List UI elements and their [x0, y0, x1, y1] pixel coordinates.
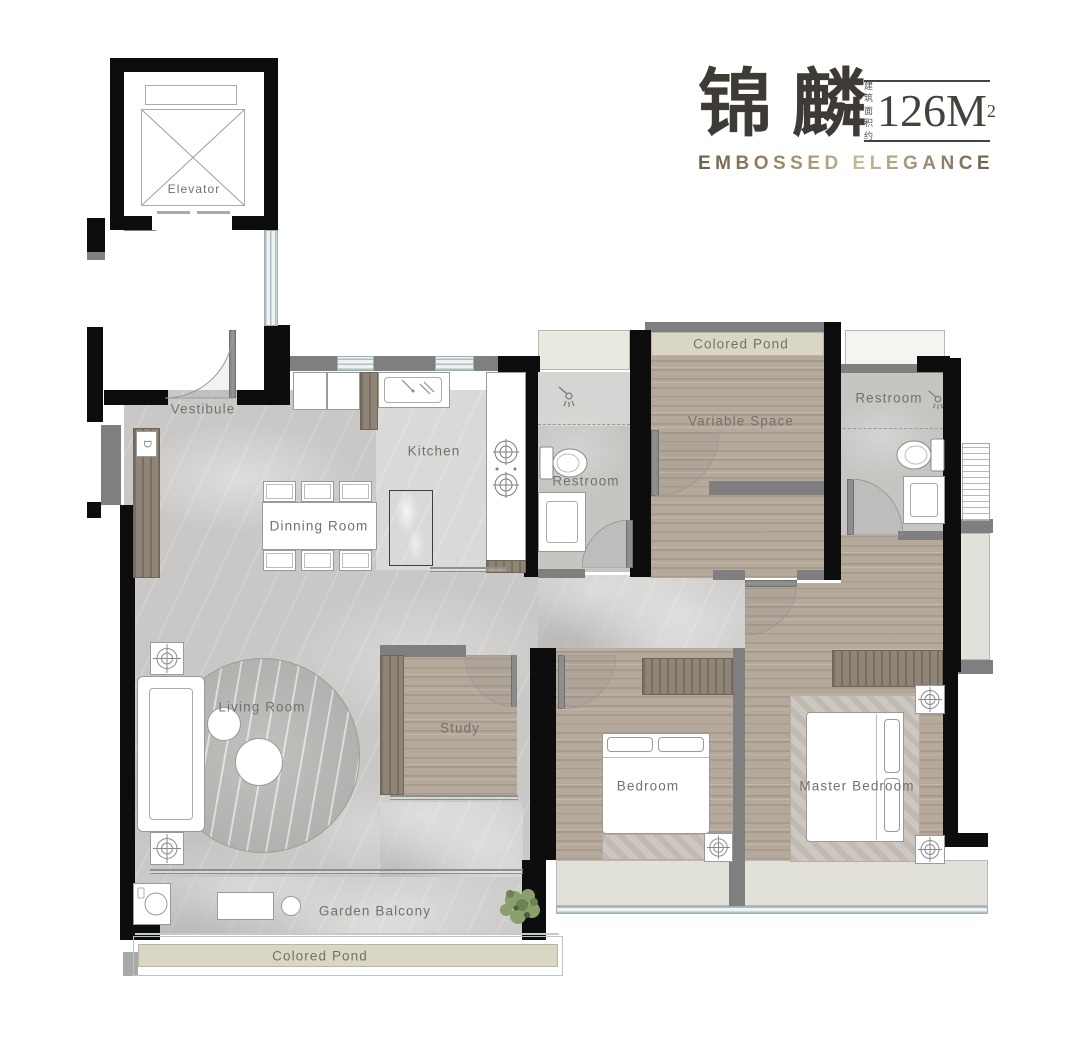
wall-segment: [824, 322, 841, 580]
balcony-bench: [217, 892, 274, 920]
floor-hallway: [538, 575, 745, 648]
kitchen-cabinet: [293, 372, 327, 410]
crosshair-icon: [705, 834, 732, 861]
crosshair-icon: [916, 836, 944, 863]
bay-restroom-center-north: [538, 330, 630, 370]
restroom-right-door-arc: [851, 479, 903, 535]
side-table: [150, 642, 184, 675]
sofa-seat: [149, 688, 193, 820]
bedroom-door-arc: [562, 655, 616, 709]
master-door-arc: [745, 583, 797, 635]
washer-drum-icon: [134, 884, 170, 924]
restroom-center-door-arc: [582, 520, 630, 568]
dining-chair: [301, 481, 334, 502]
kitchen-island: [389, 490, 433, 566]
elevator-counterweight: [145, 85, 237, 105]
dining-chair: [263, 481, 296, 502]
wall-segment: [713, 570, 745, 580]
area-superscript: 2: [987, 102, 996, 120]
area-note-line1: 建筑: [864, 80, 874, 105]
area-block: 建筑 面积约 126M 2: [864, 80, 990, 142]
wall-segment: [104, 390, 168, 405]
kitchen-faucet-icon: [400, 378, 436, 402]
crosshair-icon: [916, 686, 944, 713]
label-restroom-center: Restroom: [552, 474, 619, 489]
master-dresser: [832, 650, 943, 687]
dining-chair: [263, 550, 296, 571]
wall-segment: [943, 833, 988, 847]
living-balcony-slider: [150, 869, 523, 874]
wall-segment: [898, 531, 943, 540]
label-bedroom: Bedroom: [617, 779, 679, 794]
elevator-door-gap: [152, 216, 232, 230]
kitchen-sliding-door: [430, 567, 506, 572]
bedroom-pillow: [607, 737, 653, 752]
label-dining-room: Dinning Room: [270, 519, 369, 534]
label-study: Study: [440, 721, 480, 736]
master-nightstand: [915, 685, 945, 714]
plant-icon: [494, 880, 548, 934]
side-table: [150, 832, 184, 865]
kitchen-cabinet: [327, 372, 360, 410]
shower-partition: [843, 428, 943, 429]
floor-master-bedroom-upper: [841, 535, 943, 583]
window-band-frame: [556, 906, 988, 914]
ac-ledge: [962, 443, 990, 521]
coffee-table-large: [235, 738, 283, 786]
bedroom-bed-line: [603, 757, 709, 758]
crosshair-icon: [151, 833, 183, 864]
wall-segment: [630, 330, 651, 577]
window-corridor: [264, 230, 278, 326]
floor-balcony-side: [380, 802, 523, 877]
window-kitchen-2: [435, 356, 474, 371]
shower-icon: [926, 388, 948, 412]
wall-bedroom-divider: [733, 648, 745, 860]
area-value: 126M: [877, 88, 987, 134]
wall-segment: [645, 322, 841, 332]
master-nightstand: [915, 835, 945, 864]
label-colored-pond-top: Colored Pond: [693, 337, 789, 352]
wall-segment: [87, 502, 101, 518]
balcony-stool: [281, 896, 301, 916]
label-elevator: Elevator: [168, 182, 221, 196]
wall-variable-stub: [709, 481, 824, 495]
label-kitchen: Kitchen: [408, 444, 461, 459]
window-band-bedrooms: [556, 860, 988, 906]
bay-window-right: [958, 533, 990, 660]
wall-segment: [87, 252, 105, 260]
wall-segment: [538, 569, 585, 578]
wall-segment: [374, 356, 435, 371]
dining-chair: [339, 550, 372, 571]
crosshair-icon: [151, 643, 183, 674]
label-vestibule: Vestibule: [171, 402, 236, 417]
bedroom-rug: [602, 834, 710, 860]
dining-chair: [301, 550, 334, 571]
wall-segment: [524, 356, 538, 577]
wall-segment: [729, 860, 745, 910]
vanity-right-basin: [910, 483, 938, 517]
study-bookshelf: [380, 655, 404, 795]
shower-icon: [556, 384, 580, 410]
study-sliding-window: [390, 795, 518, 800]
variable-door-arc: [655, 432, 719, 496]
vanity-center-basin: [546, 501, 578, 543]
area-note: 建筑 面积约: [864, 80, 874, 143]
wall-segment: [264, 325, 290, 405]
washing-machine: [133, 883, 171, 925]
entry-cabinet-label: D: [140, 440, 152, 448]
wall-segment: [101, 425, 121, 505]
label-master-bedroom: Master Bedroom: [799, 779, 914, 794]
entry-cabinet-tag: D: [136, 431, 157, 457]
label-restroom-right: Restroom: [855, 391, 922, 406]
master-bed-line: [876, 714, 877, 840]
bedroom-nightstand: [704, 833, 733, 862]
project-title-cn: 锦麟: [698, 64, 886, 145]
master-pillow: [884, 719, 900, 773]
kitchen-tall-cabinet: [360, 372, 378, 430]
area-note-line2: 面积约: [864, 105, 874, 143]
stove-burners-icon: [492, 438, 520, 500]
entrance-door-arc: [165, 330, 235, 400]
toilet-right: [891, 436, 945, 474]
floor-plan-canvas: D: [0, 0, 1080, 1045]
label-living-room: Living Room: [218, 700, 305, 715]
shower-partition: [538, 424, 630, 425]
bedroom-pillow: [658, 737, 704, 752]
shower-zone-center: [538, 372, 630, 426]
wall-segment: [87, 218, 105, 252]
label-variable-space: Variable Space: [688, 414, 794, 429]
bedroom-wardrobe: [642, 658, 733, 695]
elevator-sill: [197, 211, 230, 214]
wall-segment: [87, 327, 103, 422]
label-garden-balcony: Garden Balcony: [319, 904, 431, 919]
label-colored-pond-bottom: Colored Pond: [272, 949, 368, 964]
wall-segment: [797, 570, 824, 580]
window-kitchen-1: [337, 356, 374, 371]
dining-chair: [339, 481, 372, 502]
project-subtitle: EMBOSSED ELEGANCE: [698, 153, 994, 175]
wall-segment: [530, 648, 556, 860]
elevator-sill: [157, 211, 190, 214]
study-door-arc: [465, 655, 517, 707]
wall-segment: [474, 356, 498, 371]
wall-segment: [943, 672, 958, 833]
